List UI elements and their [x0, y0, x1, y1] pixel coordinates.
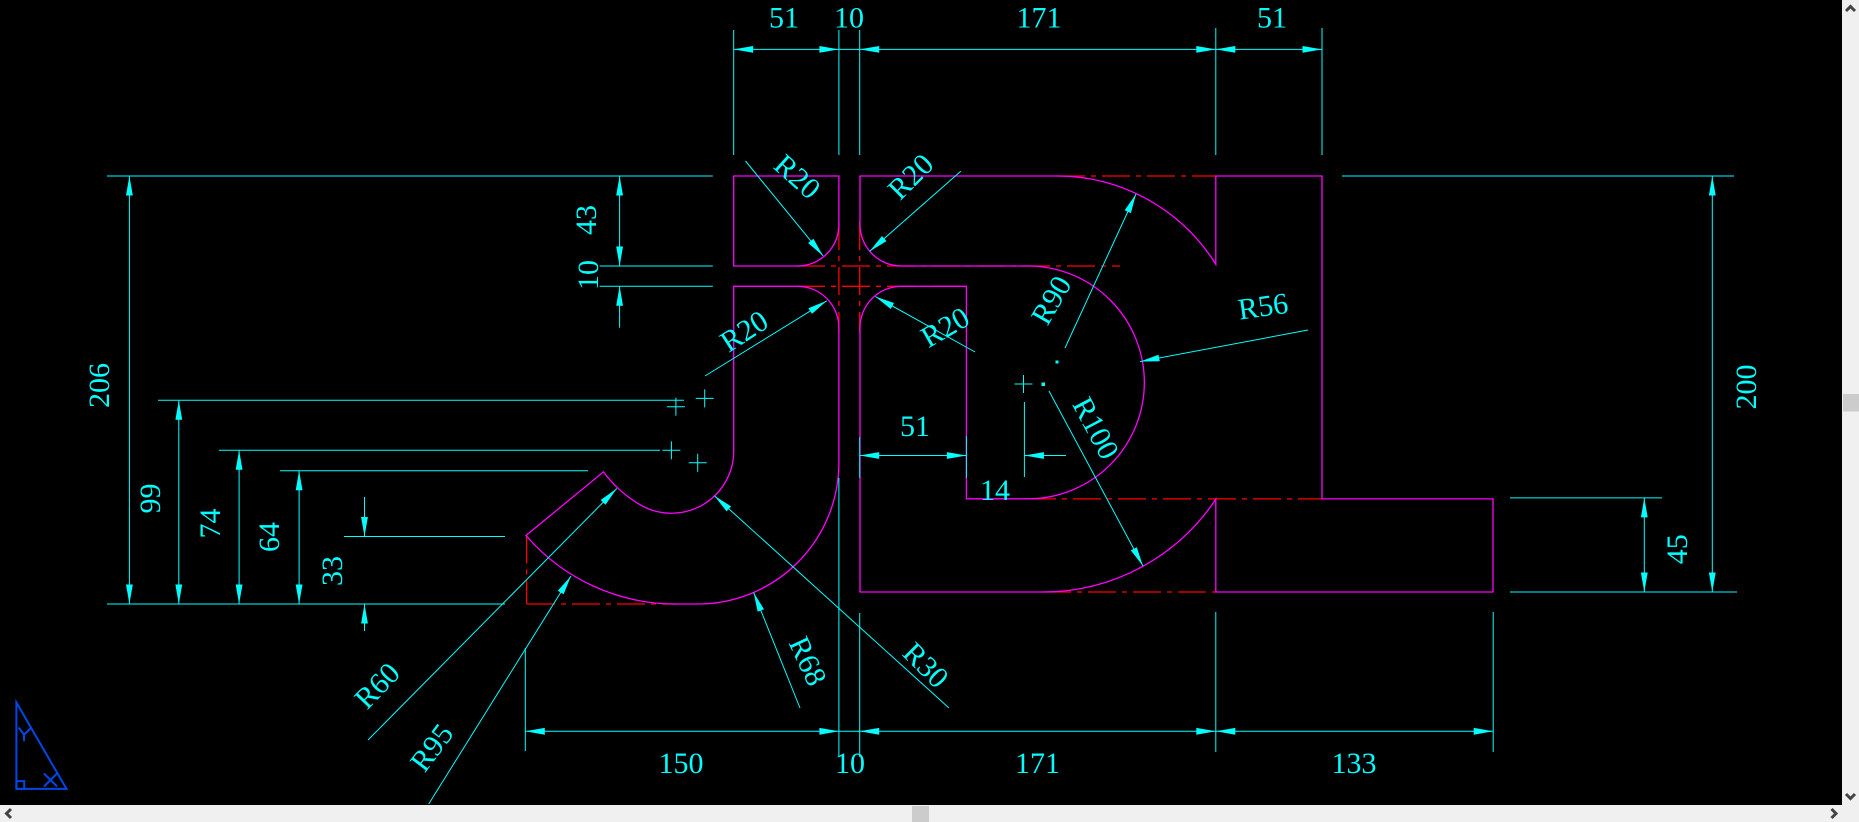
svg-text:64: 64 [253, 522, 286, 552]
svg-text:45: 45 [1661, 534, 1694, 564]
svg-text:51: 51 [1257, 2, 1287, 35]
svg-text:200: 200 [1730, 365, 1763, 410]
svg-text:99: 99 [134, 484, 167, 514]
svg-text:10: 10 [834, 2, 864, 35]
svg-text:171: 171 [1017, 2, 1062, 35]
svg-text:74: 74 [194, 509, 227, 539]
svg-text:10: 10 [835, 747, 865, 780]
svg-text:206: 206 [83, 363, 116, 408]
svg-text:133: 133 [1332, 747, 1377, 780]
svg-text:51: 51 [769, 2, 799, 35]
svg-text:51: 51 [900, 410, 930, 443]
svg-text:171: 171 [1015, 747, 1060, 780]
svg-text:150: 150 [659, 747, 704, 780]
svg-text:14: 14 [980, 474, 1010, 507]
svg-text:10: 10 [572, 260, 605, 290]
svg-text:43: 43 [570, 205, 603, 235]
svg-text:R56: R56 [1236, 287, 1290, 327]
svg-text:33: 33 [316, 556, 349, 586]
